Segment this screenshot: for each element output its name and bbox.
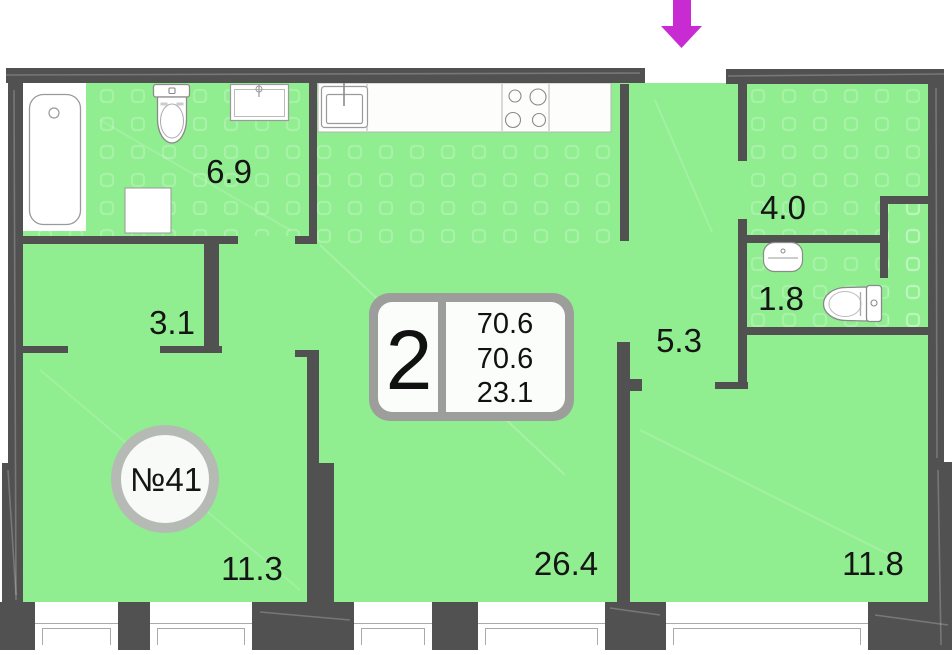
svg-text:1.8: 1.8 (758, 280, 804, 317)
svg-text:11.8: 11.8 (842, 545, 904, 582)
svg-text:11.3: 11.3 (221, 550, 283, 587)
svg-text:2: 2 (386, 313, 433, 407)
svg-text:4.0: 4.0 (760, 189, 806, 226)
svg-text:№41: №41 (130, 461, 202, 498)
svg-text:23.1: 23.1 (477, 377, 533, 409)
svg-text:70.6: 70.6 (477, 308, 533, 340)
svg-text:5.3: 5.3 (656, 322, 702, 359)
svg-text:26.4: 26.4 (534, 545, 598, 582)
svg-text:3.1: 3.1 (149, 304, 195, 341)
svg-text:70.6: 70.6 (477, 343, 533, 375)
svg-text:6.9: 6.9 (206, 153, 252, 190)
